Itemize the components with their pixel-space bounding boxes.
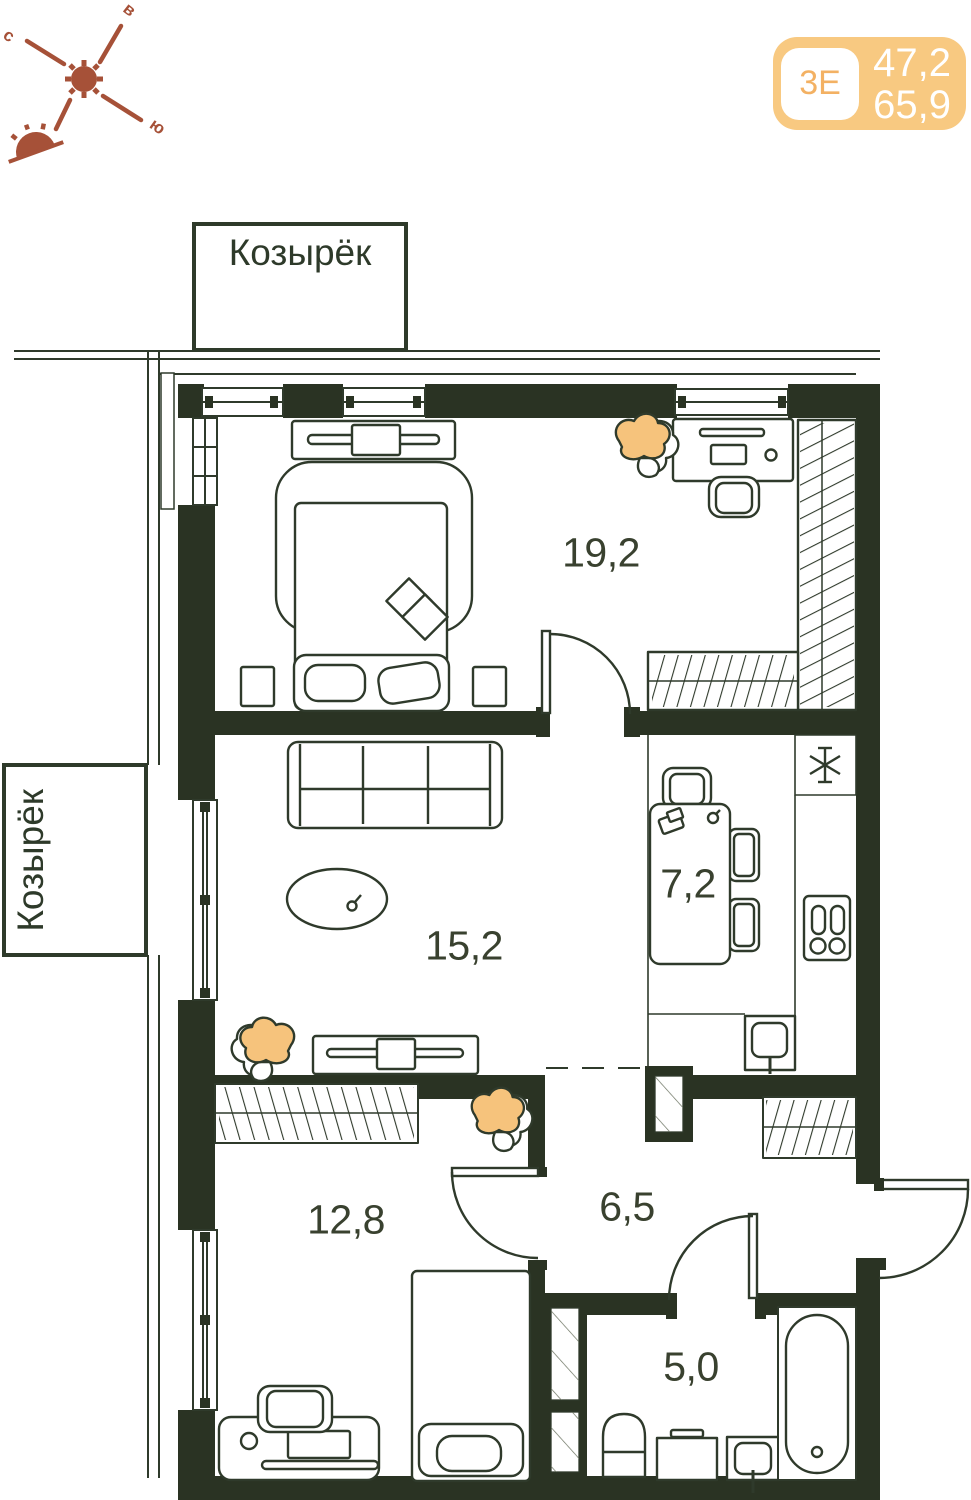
single-bed	[412, 1271, 530, 1481]
washing-machine	[657, 1430, 717, 1480]
door-entrance	[874, 1178, 968, 1278]
door-bedroom-main	[542, 631, 630, 714]
desk-chair	[709, 477, 759, 517]
wardrobe-bottom	[648, 652, 798, 710]
floorplan-page: Козырёк Козырёк 3Е 47,2 65,9 19,2 15,2 7…	[0, 0, 971, 1500]
nightstand	[473, 667, 506, 706]
plant-icon	[232, 1018, 294, 1081]
desk	[673, 419, 793, 481]
furniture-living	[287, 742, 502, 1074]
window-top-bedroom-1	[202, 388, 283, 416]
sofa	[288, 742, 502, 828]
dresser	[292, 421, 455, 459]
stove	[804, 896, 850, 960]
sunset-icon	[0, 115, 63, 162]
vent-box	[795, 735, 856, 795]
room-area-label-bedroom-second: 12,8	[307, 1197, 385, 1244]
room-area-label-bathroom: 5,0	[663, 1344, 719, 1391]
door-bedroom2	[452, 1168, 538, 1258]
apartment-badge: 3Е 47,2 65,9	[773, 37, 966, 130]
toilet	[603, 1414, 645, 1477]
coat-rack	[763, 1097, 856, 1158]
room-area-label-living-room: 15,2	[425, 923, 503, 970]
canopy-left-box: Козырёк	[2, 763, 148, 957]
apartment-type-chip: 3Е	[781, 48, 859, 120]
furniture-bedroom2	[215, 1084, 530, 1481]
window-left-bedroom2	[193, 1230, 217, 1410]
floorplan-drawing	[0, 0, 971, 1500]
room-area-label-kitchen: 7,2	[660, 861, 716, 908]
room-area-label-bedroom-main: 19,2	[562, 530, 640, 577]
bathroom-fittings	[603, 1307, 856, 1493]
tv-stand	[313, 1036, 478, 1074]
window-top-study	[675, 389, 788, 415]
plant-icon	[472, 1088, 533, 1151]
window-left-living	[193, 800, 217, 1000]
apartment-type-label: 3Е	[799, 64, 841, 103]
desk2-chair	[258, 1386, 332, 1432]
wardrobe-right	[798, 420, 856, 710]
canopy-top-box: Козырёк	[192, 222, 408, 352]
canopy-left-label: Козырёк	[10, 789, 52, 932]
wardrobe-top	[215, 1084, 418, 1143]
total-area-value: 65,9	[873, 84, 951, 126]
coffee-table	[287, 869, 387, 929]
canopy-top-label: Козырёк	[229, 232, 372, 274]
duct-shaft-bathroom	[545, 1300, 587, 1476]
apartment-areas: 47,2 65,9	[859, 42, 966, 126]
bathtub	[778, 1307, 856, 1480]
plant-icon	[616, 414, 678, 477]
door-bathroom	[669, 1214, 757, 1300]
compass-icon	[0, 26, 141, 162]
room-area-label-hallway: 6,5	[599, 1184, 655, 1231]
nightstand	[241, 667, 274, 706]
kitchen-sink	[745, 1016, 795, 1074]
double-bed	[276, 462, 472, 711]
window-left-bedroom	[193, 418, 217, 505]
duct-shaft-kitchen	[645, 1066, 693, 1142]
living-area-value: 47,2	[873, 42, 951, 84]
window-top-bedroom-2	[343, 388, 425, 416]
